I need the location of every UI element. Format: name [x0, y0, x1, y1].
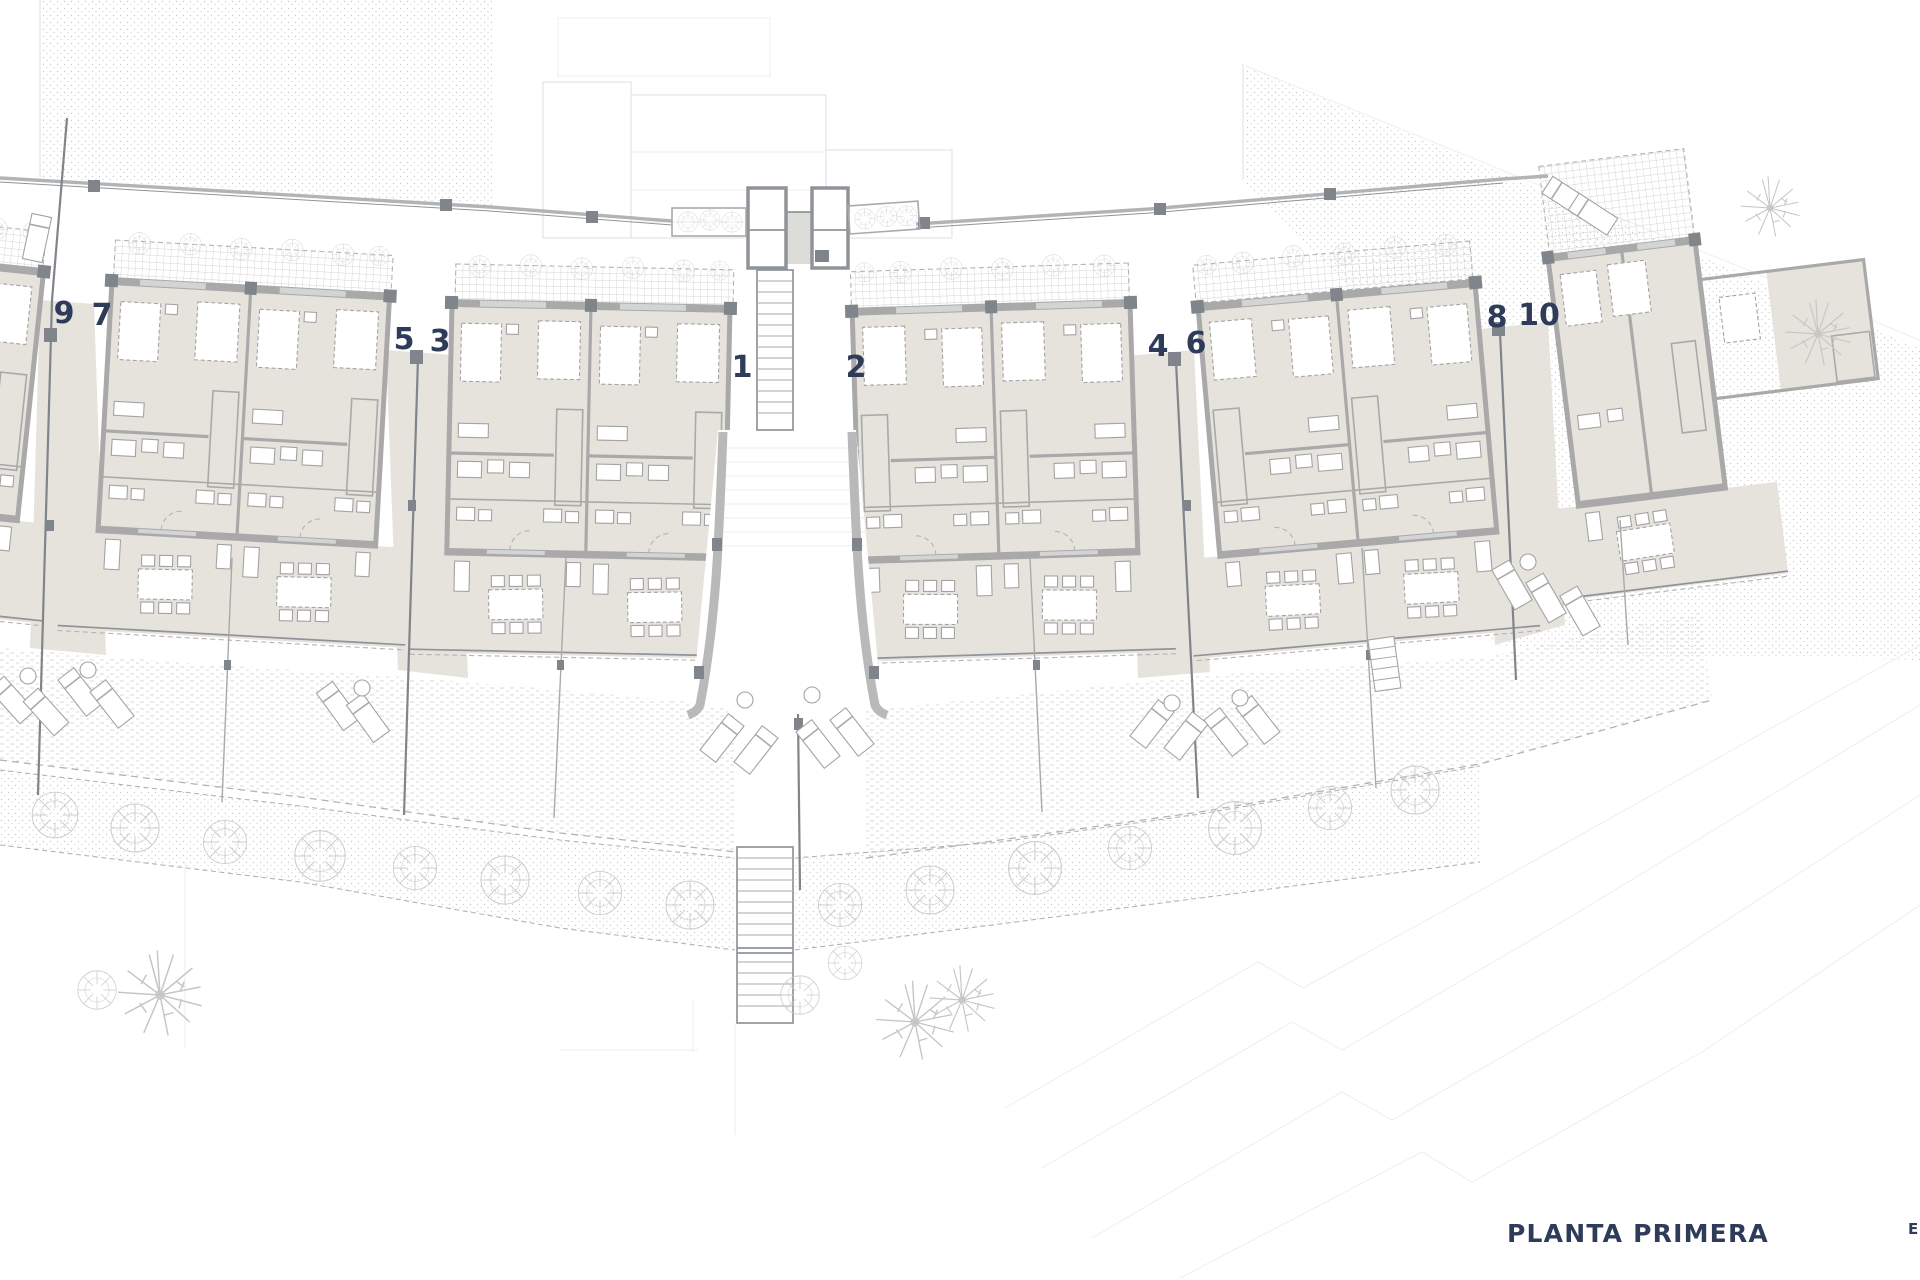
plan-title: PLANTA PRIMERA [1507, 1219, 1769, 1248]
gate-4-6 [1168, 352, 1181, 366]
garden-staircase [735, 847, 793, 1135]
unit-label-7: 7 [92, 298, 113, 333]
wing [1766, 260, 1878, 391]
unit-label-2: 2 [846, 350, 867, 385]
gravel-area-top-left [40, 0, 492, 207]
unit-label-10: 10 [1518, 298, 1560, 333]
building-block-2 [57, 272, 424, 650]
unit-label-3: 3 [430, 324, 451, 359]
unit-label-9: 9 [54, 296, 75, 331]
unit-label-6: 6 [1186, 326, 1207, 361]
central-core [748, 188, 848, 268]
unit-label-8: 8 [1487, 300, 1508, 335]
upper-staircase [757, 270, 793, 430]
edge-label: E [1908, 1220, 1918, 1238]
unit-label-4: 4 [1148, 329, 1169, 364]
floor-plan-canvas: 9 7 5 3 1 2 4 6 8 10 PLANTA PRIMERA E [0, 0, 1920, 1280]
unit-label-5: 5 [394, 322, 415, 357]
planter-right [848, 201, 920, 234]
central-path [688, 430, 887, 715]
site-plan-svg: 9 7 5 3 1 2 4 6 8 10 PLANTA PRIMERA E [0, 0, 1920, 1280]
unit-label-1: 1 [732, 350, 753, 385]
